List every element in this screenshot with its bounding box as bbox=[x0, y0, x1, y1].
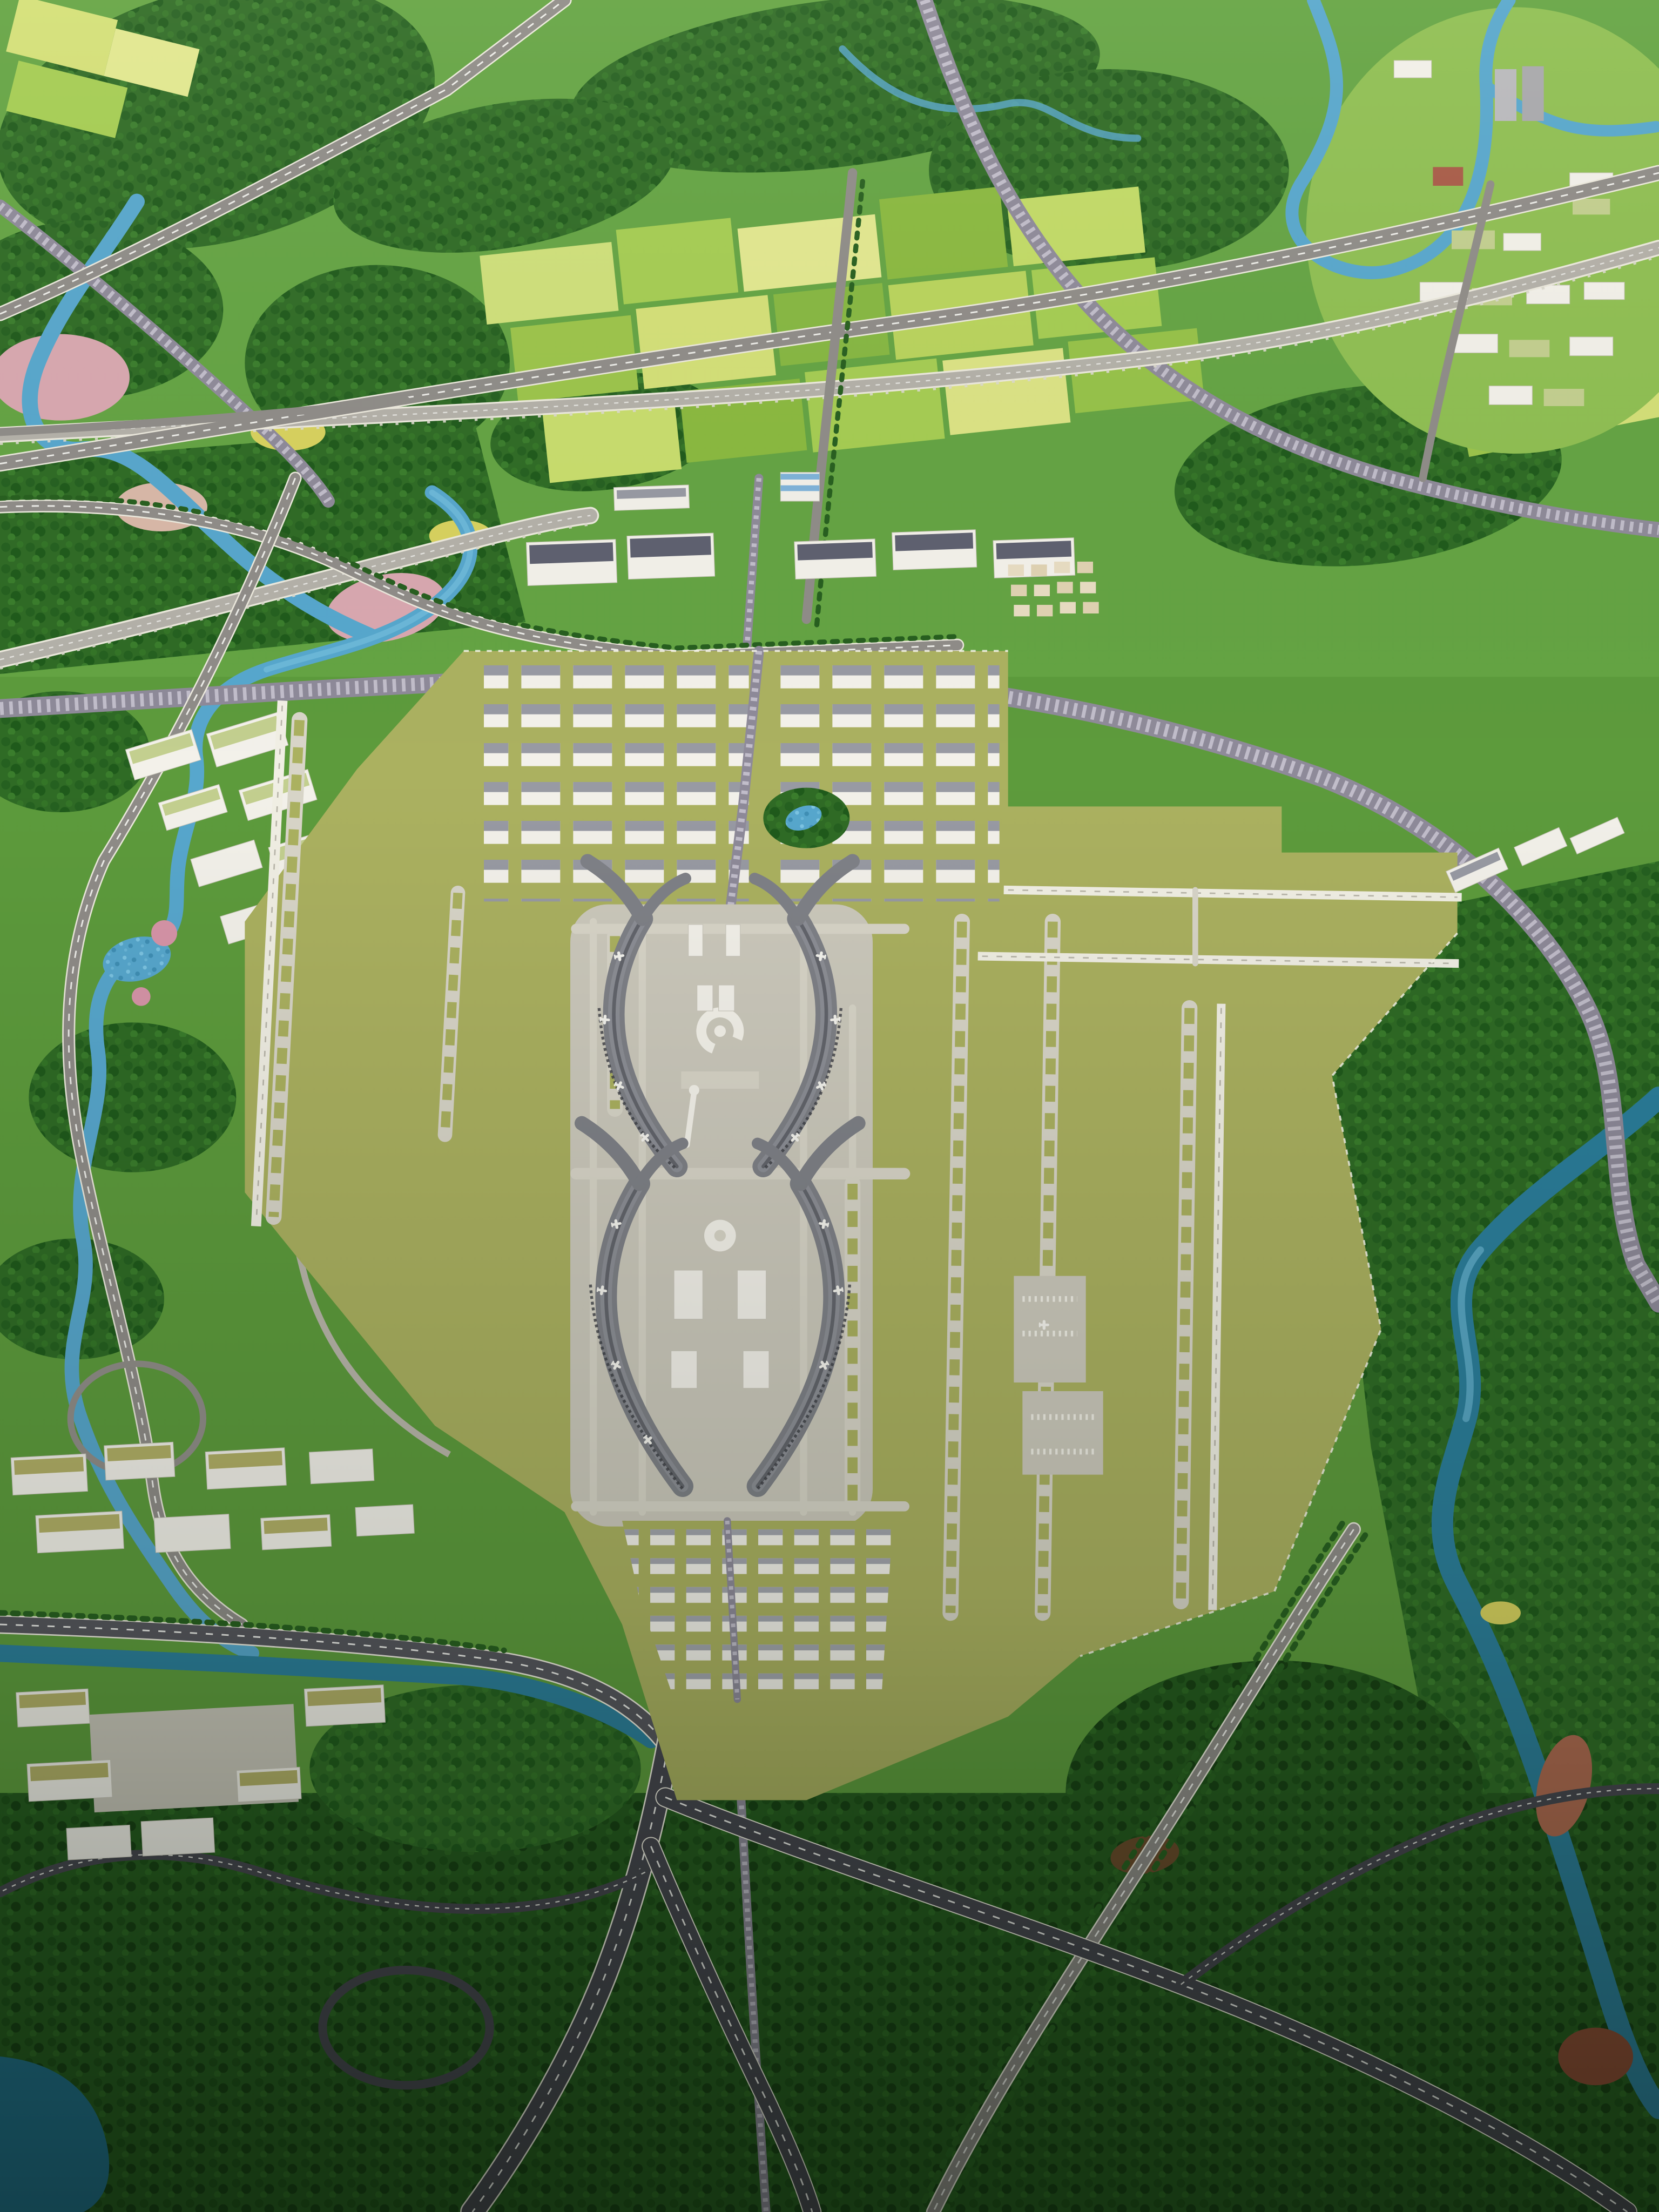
photo-vignette bbox=[0, 0, 1659, 2212]
model-photo bbox=[0, 0, 1659, 2212]
scale-model-scene bbox=[0, 0, 1659, 2212]
